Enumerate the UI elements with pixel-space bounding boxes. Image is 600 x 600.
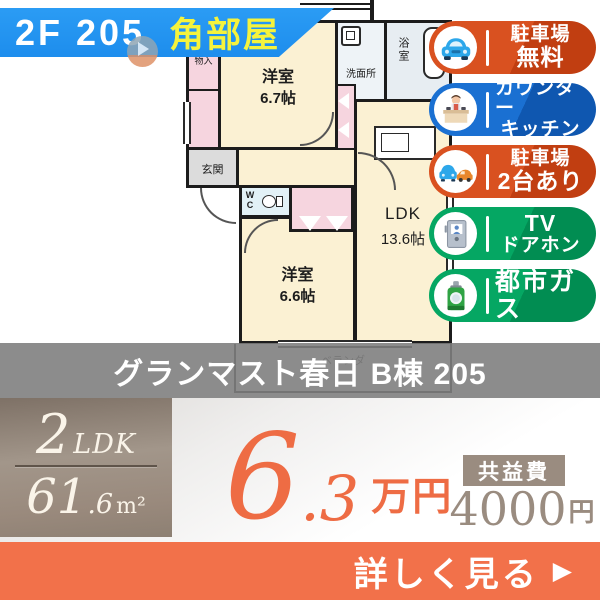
washing-machine-icon	[341, 26, 361, 46]
building-title: グランマスト春日 B棟 205	[113, 349, 486, 393]
badge-line: 無料	[517, 45, 565, 70]
room-label: 洋室	[221, 63, 335, 87]
doorphone-icon	[434, 212, 477, 255]
fee-value: 4000 円	[452, 486, 592, 532]
listing-card: 洋室 6.7帖 物入 洗面所 浴室 玄関 LDK 13.6帖	[0, 0, 600, 600]
toilet-icon	[262, 195, 276, 208]
room-size-label: 6.6帖	[242, 285, 353, 306]
area-unit: m²	[116, 494, 146, 519]
room-size-label: 6.7帖	[221, 87, 335, 108]
badge-line: 2台あり	[498, 169, 584, 194]
room-label: 玄関	[189, 161, 236, 177]
kitchen-counter	[374, 126, 436, 160]
badge-separator	[486, 154, 489, 190]
room-label: 浴室	[395, 37, 411, 63]
rent-decimal: .3	[300, 468, 359, 530]
two-cars-icon	[434, 150, 477, 193]
floor-unit-label: 2F 205	[15, 12, 145, 54]
closet-divider	[189, 89, 218, 91]
compass-icon	[127, 36, 158, 67]
header-band: 2F 205 角部屋	[0, 8, 334, 57]
badge-counter-kitchen: カウンター キッチン	[429, 83, 596, 136]
fee-unit: 円	[569, 492, 595, 529]
badge-line: 都市ガス	[495, 269, 586, 323]
area-decimal: .6	[87, 489, 113, 520]
badge-line: キッチン	[500, 120, 580, 141]
rent-price: 6 .3 万円	[225, 402, 453, 532]
corner-room-label: 角部屋	[169, 7, 280, 58]
badge-parking-free: 駐車場 無料	[429, 21, 596, 74]
room-wc: WC	[239, 185, 292, 218]
badge-line: TV	[525, 211, 556, 236]
door-arc-entrance	[200, 188, 236, 224]
title-band: グランマスト春日 B棟 205	[0, 343, 600, 398]
car-icon	[434, 26, 477, 69]
badge-line: 駐車場	[510, 149, 570, 170]
window	[183, 102, 191, 144]
rent-unit: 万円	[371, 466, 453, 522]
badge-line: ドアホン	[500, 236, 580, 257]
badge-separator	[486, 92, 489, 128]
wall-stub	[300, 3, 372, 5]
badge-tv-doorphone: TV ドアホン	[429, 207, 596, 260]
badge-parking-2cars: 駐車場 2台あり	[429, 145, 596, 198]
badge-line: カウンター	[495, 79, 586, 120]
badge-separator	[486, 278, 489, 314]
arrow-right-icon: ▶	[553, 556, 572, 586]
gas-cylinder-icon	[434, 274, 477, 317]
counter-kitchen-icon	[434, 88, 477, 131]
badge-separator	[486, 216, 489, 252]
layout-type-label: LDK	[73, 429, 136, 460]
room-label: 洗面所	[338, 65, 384, 80]
spec-box: 2 LDK 61 .6 m²	[0, 398, 172, 537]
room-label: 洋室	[242, 261, 353, 285]
closet-door-strip	[336, 84, 356, 150]
area-value: 61	[26, 473, 87, 521]
details-button-label[interactable]: 詳しく見る	[354, 547, 539, 596]
badge-separator	[486, 30, 489, 66]
rent-integer: 6	[225, 423, 300, 532]
rooms-count: 2	[36, 408, 70, 462]
wall-stub	[370, 0, 374, 22]
badge-city-gas: 都市ガス	[429, 269, 596, 322]
details-button[interactable]: 詳しく見る ▶	[0, 542, 600, 600]
room-label: WC	[245, 190, 255, 210]
fee-amount: 4000	[449, 486, 566, 532]
badge-line: 駐車場	[510, 25, 570, 46]
room-entrance: 玄関	[186, 147, 239, 188]
closet-western-6-6	[289, 185, 354, 232]
closet-monoire: 物入	[186, 48, 221, 150]
